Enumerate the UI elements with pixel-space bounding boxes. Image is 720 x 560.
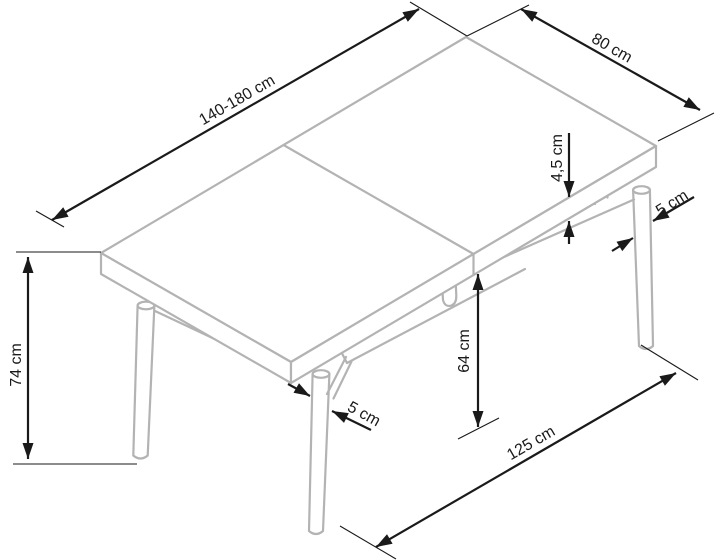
dim-leg-diameter-right: 5 cm [612, 187, 694, 251]
dim-clearance: 64 cm [456, 274, 499, 439]
table-leg-right [633, 186, 653, 349]
dim-label-clearance: 64 cm [456, 329, 473, 373]
dim-label-height: 74 cm [8, 343, 25, 387]
dim-label-leg-diameter-right: 5 cm [653, 187, 691, 220]
dim-leg-diameter-front: 5 cm [288, 383, 383, 430]
table-line-art [101, 37, 656, 534]
table-dimension-diagram: 140-180 cm 80 cm 4,5 cm 5 cm [0, 0, 720, 560]
diagram-svg: 140-180 cm 80 cm 4,5 cm 5 cm [0, 0, 720, 560]
table-top [101, 37, 656, 383]
dim-leg-span: 125 cm [340, 345, 698, 559]
table-leg-rear-left [133, 302, 154, 459]
dim-label-length: 140-180 cm [196, 72, 278, 129]
dim-label-top-thickness: 4,5 cm [549, 134, 566, 182]
